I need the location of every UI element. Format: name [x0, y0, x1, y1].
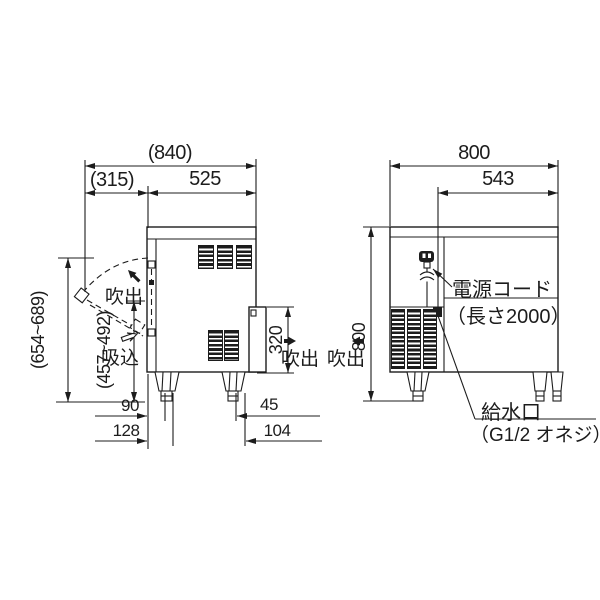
label-power-cord: 電源コード	[452, 273, 600, 302]
side-upper-vent-1	[198, 245, 214, 269]
power-plug-icon	[419, 251, 434, 262]
suction-arrow-icon	[121, 333, 137, 341]
dim-body-depth: 525	[155, 168, 255, 191]
dim-front-leg-setback-outer: 128	[76, 421, 176, 441]
side-upper-vent-2	[217, 245, 233, 269]
front-vent-1	[391, 309, 405, 369]
label-water-inlet-thread: （G1/2 オネジ）	[470, 420, 600, 447]
front-vent-3	[423, 309, 437, 369]
label-blowout-side-right: 吹出	[306, 344, 386, 371]
side-upper-vent-3	[236, 245, 252, 269]
blowout-front-arrow-icon	[128, 270, 141, 283]
label-blowout-front: 吹出	[84, 282, 164, 309]
dimension-drawing: (840) (315) 525 800 543 90 128 45 104 (6…	[0, 0, 600, 600]
dim-overall-depth: (840)	[120, 142, 220, 165]
dim-rear-leg-setback-outer: 104	[227, 421, 327, 441]
side-lower-vent-2	[224, 330, 239, 361]
label-suction: 吸込	[80, 343, 160, 370]
dim-rear-leg-setback: 45	[219, 395, 319, 415]
dim-inlet-offset: 543	[448, 168, 548, 191]
dim-front-height	[363, 227, 413, 401]
label-power-cord-length: （長さ2000）	[446, 300, 600, 329]
dim-open-lid-height-range: (654~689)	[28, 265, 48, 395]
side-lower-vent-1	[208, 330, 223, 361]
dim-door-open-depth: (315)	[62, 169, 162, 192]
dim-front-width: 800	[424, 142, 524, 165]
power-cord	[419, 251, 434, 307]
front-vent-2	[407, 309, 421, 369]
